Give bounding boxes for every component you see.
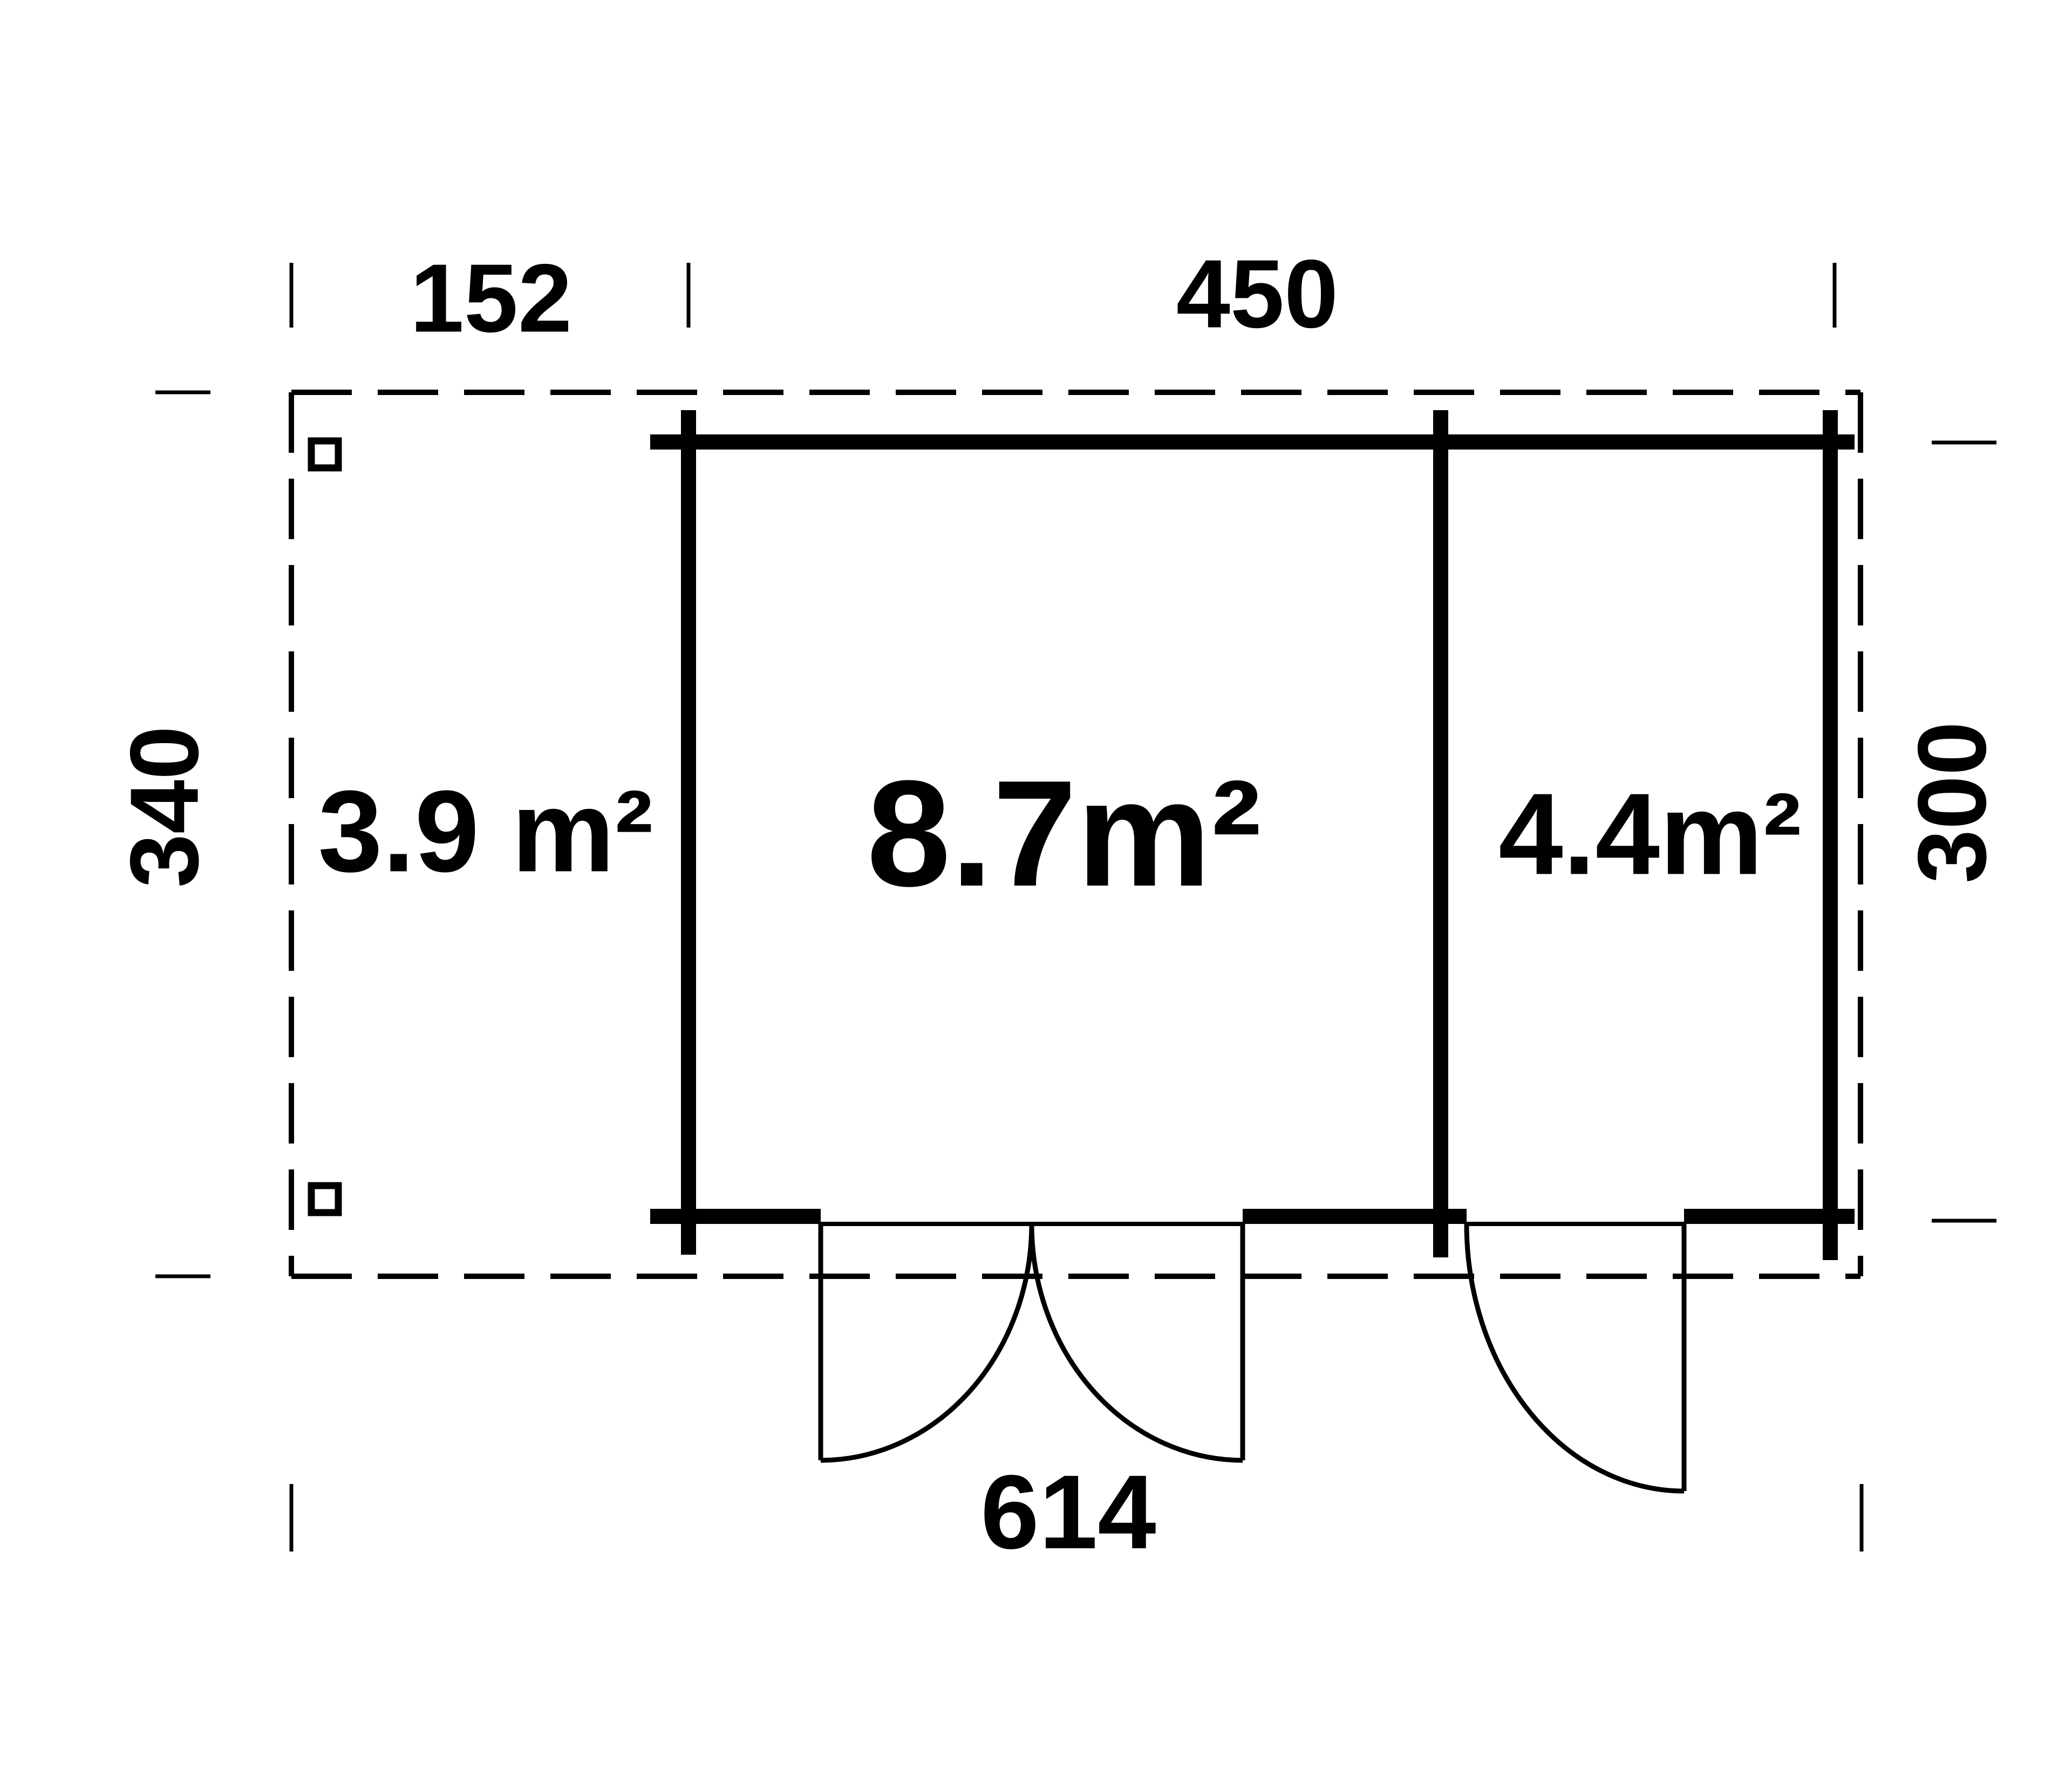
floor-plan-page: 152 450 340 300 614 3.9 m² 8.7m² 4.4m² (0, 0, 2072, 1776)
area-label-side-room: 4.4m² (1498, 769, 1802, 899)
single-door-swing-arc (1467, 1224, 1684, 1491)
double-door-left-swing-arc (821, 1224, 1032, 1460)
dimension-cabin-depth: 300 (1898, 722, 2007, 883)
terrace-post-top (311, 441, 338, 468)
area-label-terrace: 3.9 m² (318, 766, 653, 896)
single-door (1467, 1224, 1684, 1491)
wall-bottom-left-segment (650, 1209, 821, 1224)
dimension-total-width: 614 (980, 1453, 1156, 1571)
double-door (821, 1224, 1243, 1460)
wall-right (1823, 410, 1838, 1260)
wall-partition (1433, 410, 1448, 1257)
double-door-right-swing-arc (1032, 1224, 1243, 1460)
dimension-cabin-width: 450 (1176, 240, 1338, 349)
wall-bottom-middle-segment (1243, 1209, 1467, 1224)
terrace-post-bottom (311, 1186, 338, 1213)
wall-top (650, 434, 1855, 450)
dimension-terrace-width: 152 (410, 244, 572, 353)
dimension-total-depth: 340 (111, 726, 219, 888)
area-label-main-room: 8.7m² (867, 750, 1261, 918)
floor-plan-drawing: 152 450 340 300 614 3.9 m² 8.7m² 4.4m² (0, 0, 2072, 1776)
wall-left (681, 410, 696, 1255)
